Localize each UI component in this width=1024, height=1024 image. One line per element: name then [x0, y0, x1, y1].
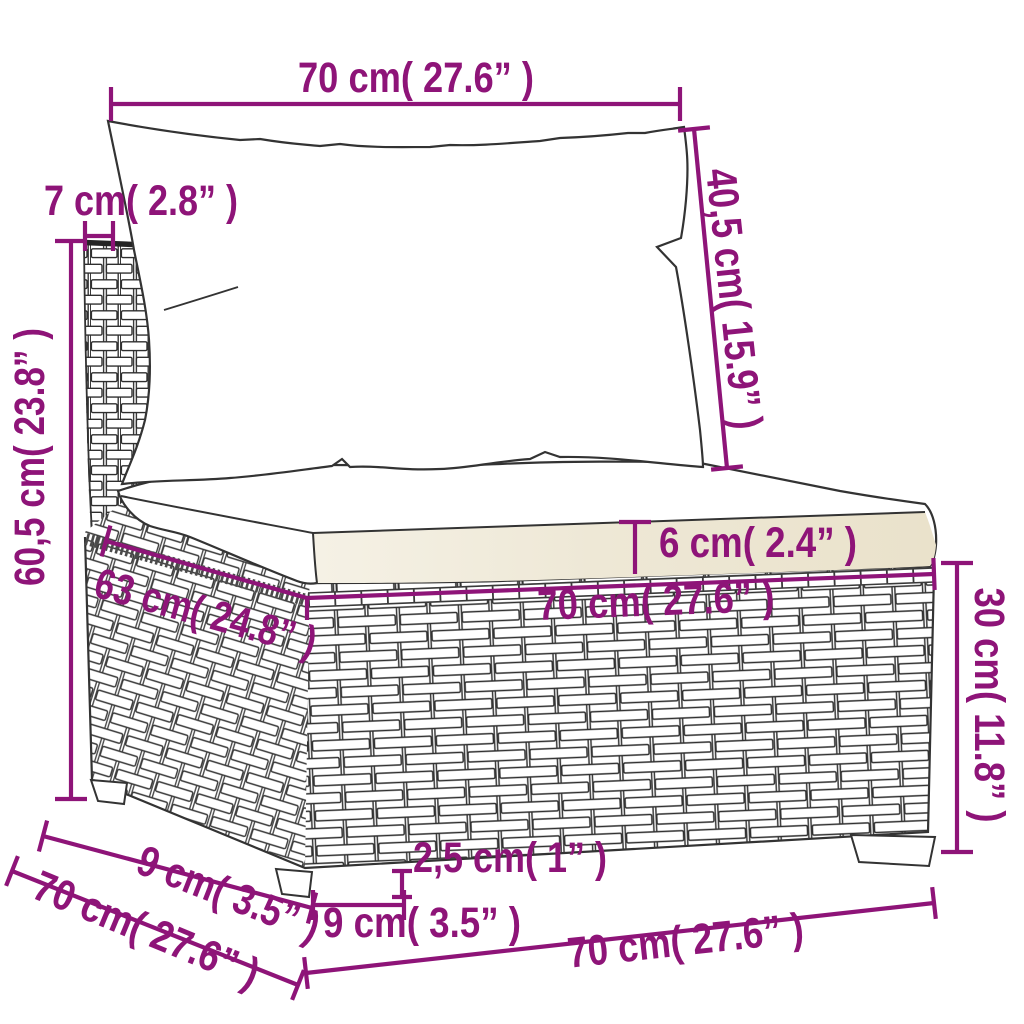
svg-text:60,5 cm( 23.8” ): 60,5 cm( 23.8” ) [6, 328, 54, 586]
svg-text:2,5 cm( 1” ): 2,5 cm( 1” ) [413, 834, 607, 882]
svg-text:9 cm( 3.5” ): 9 cm( 3.5” ) [323, 899, 521, 947]
svg-text:70 cm( 27.6” ): 70 cm( 27.6” ) [298, 54, 534, 102]
svg-text:6 cm( 2.4” ): 6 cm( 2.4” ) [659, 519, 857, 567]
svg-text:7 cm( 2.8” ): 7 cm( 2.8” ) [44, 177, 238, 225]
svg-text:70 cm( 27.6” ): 70 cm( 27.6” ) [537, 573, 776, 630]
svg-text:30 cm( 11.8” ): 30 cm( 11.8” ) [965, 588, 1013, 823]
